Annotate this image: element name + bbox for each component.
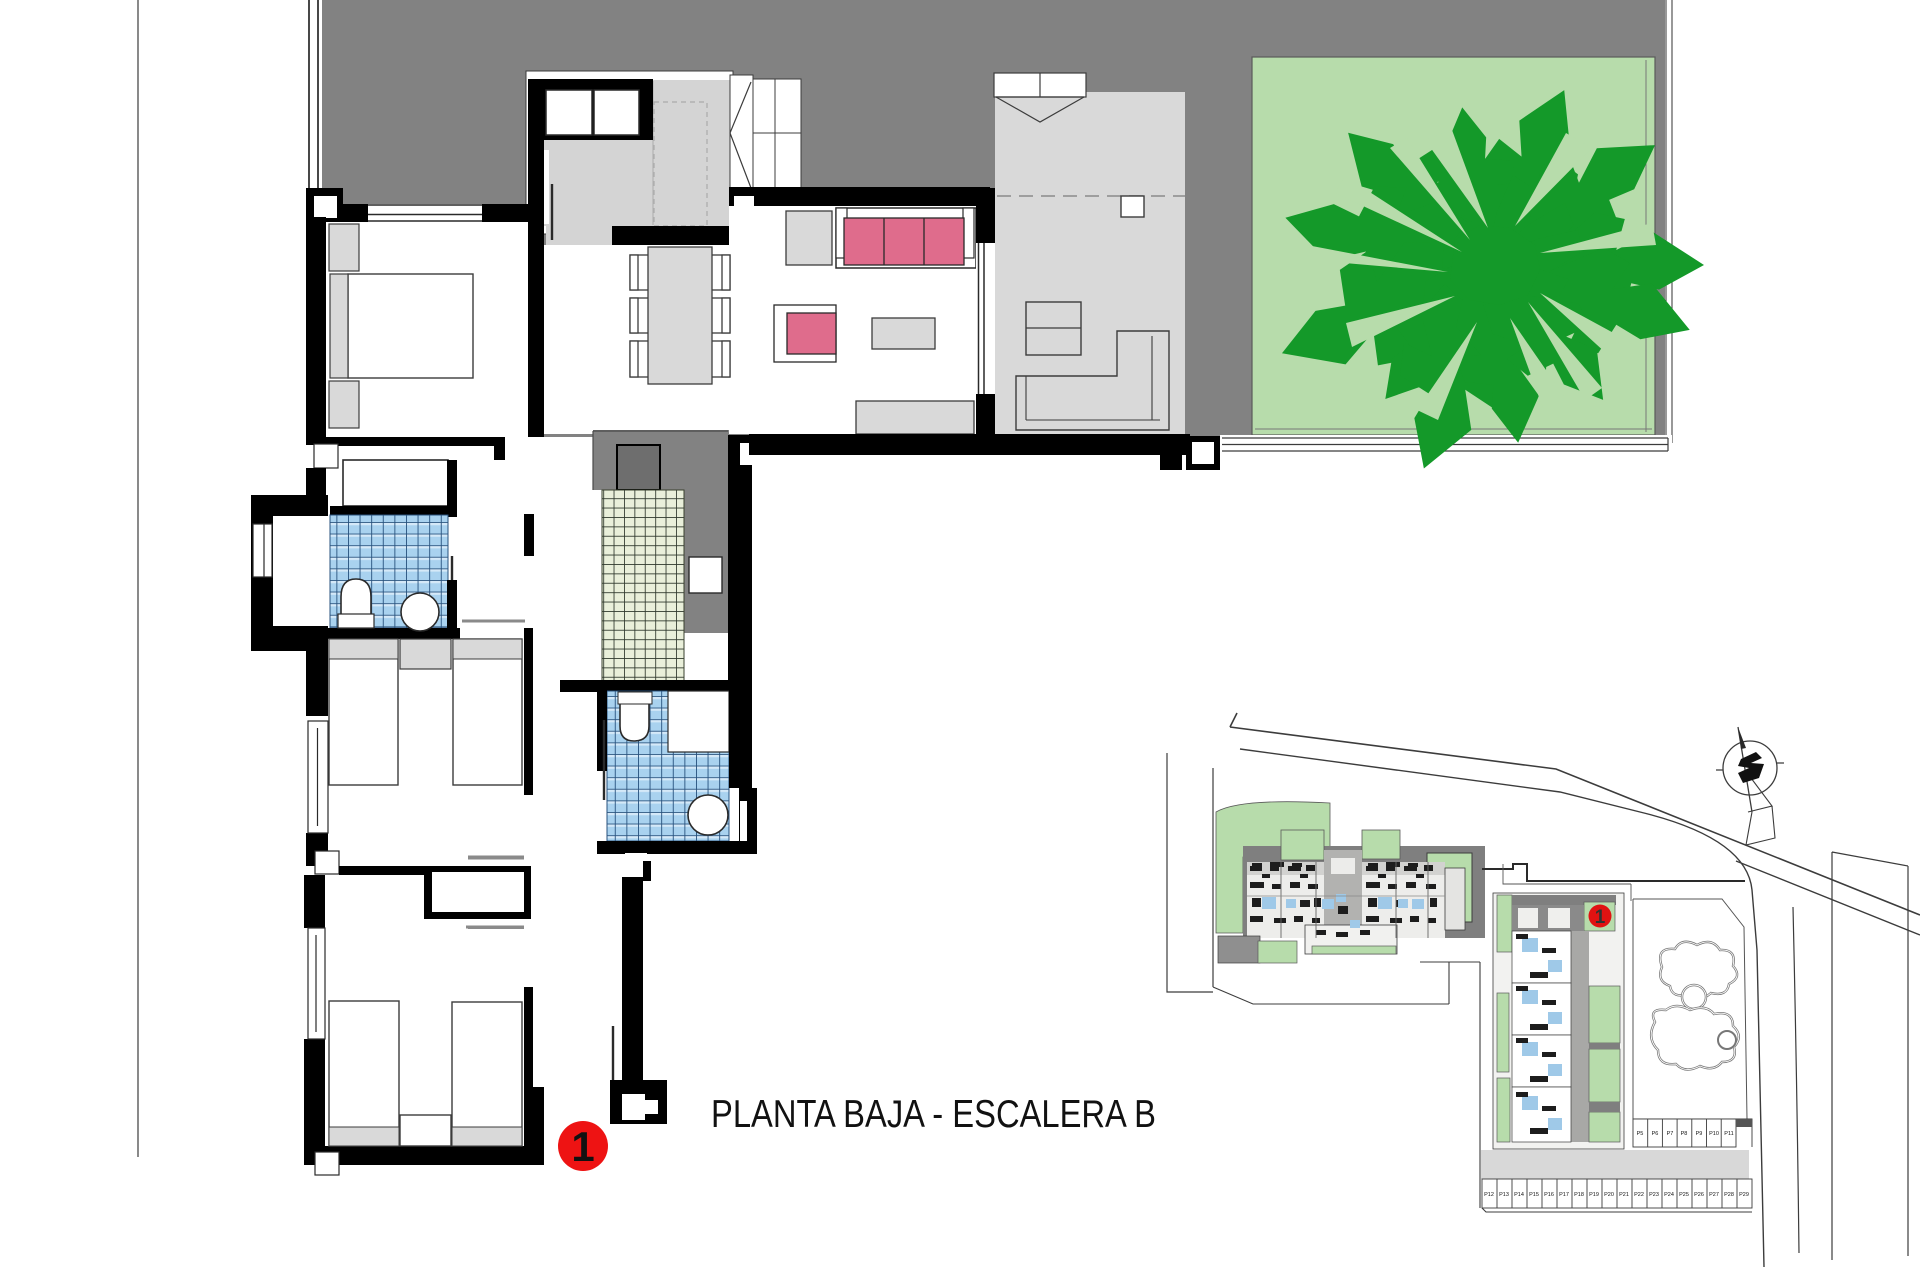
svg-text:P18: P18 bbox=[1574, 1192, 1584, 1198]
svg-text:P24: P24 bbox=[1664, 1192, 1674, 1198]
svg-text:P16: P16 bbox=[1544, 1192, 1554, 1198]
svg-text:P5: P5 bbox=[1637, 1131, 1644, 1137]
svg-text:P21: P21 bbox=[1619, 1192, 1629, 1198]
svg-text:P19: P19 bbox=[1589, 1192, 1599, 1198]
svg-text:P12: P12 bbox=[1484, 1192, 1494, 1198]
svg-text:P9: P9 bbox=[1696, 1131, 1703, 1137]
svg-text:P8: P8 bbox=[1681, 1131, 1688, 1137]
svg-text:P26: P26 bbox=[1694, 1192, 1704, 1198]
svg-text:P11: P11 bbox=[1724, 1131, 1733, 1137]
svg-text:PLANTA BAJA - ESCALERA B: PLANTA BAJA - ESCALERA B bbox=[711, 1093, 1156, 1136]
svg-text:1: 1 bbox=[571, 1123, 594, 1170]
svg-text:P27: P27 bbox=[1709, 1192, 1719, 1198]
svg-text:P28: P28 bbox=[1724, 1192, 1734, 1198]
svg-text:P15: P15 bbox=[1529, 1192, 1539, 1198]
svg-text:P14: P14 bbox=[1514, 1192, 1524, 1198]
svg-text:1: 1 bbox=[1595, 907, 1606, 928]
svg-text:P23: P23 bbox=[1649, 1192, 1659, 1198]
svg-text:P20: P20 bbox=[1604, 1192, 1614, 1198]
svg-text:P7: P7 bbox=[1667, 1131, 1674, 1137]
svg-text:P22: P22 bbox=[1634, 1192, 1644, 1198]
svg-text:P29: P29 bbox=[1739, 1192, 1749, 1198]
svg-text:P13: P13 bbox=[1499, 1192, 1509, 1198]
svg-text:P17: P17 bbox=[1559, 1192, 1569, 1198]
svg-text:P25: P25 bbox=[1679, 1192, 1689, 1198]
svg-text:P10: P10 bbox=[1709, 1131, 1719, 1137]
svg-text:P6: P6 bbox=[1652, 1131, 1659, 1137]
